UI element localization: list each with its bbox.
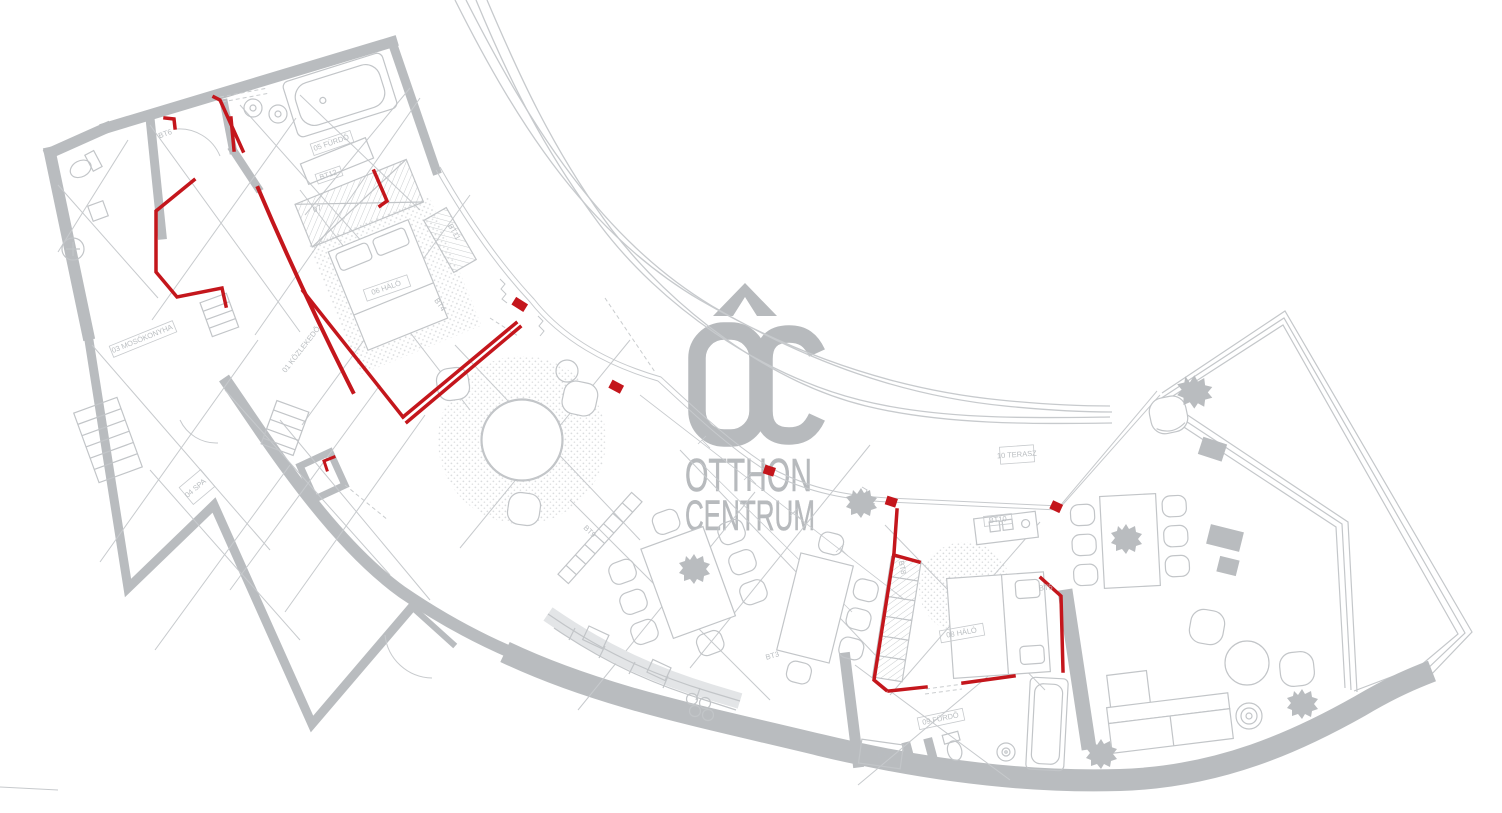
- otthon-centrum-watermark: OTTHON CENTRUM: [685, 283, 817, 540]
- bed-bedroom08: [947, 572, 1051, 679]
- washing-machine: [88, 201, 109, 222]
- room-label: BT5: [1038, 582, 1053, 592]
- toilet-bath09: [942, 731, 965, 762]
- wardrobe-bt8: [872, 557, 921, 682]
- room-label: BT6: [157, 127, 173, 140]
- room-label: 04 SPA: [183, 477, 208, 500]
- pouf: [506, 491, 542, 527]
- room-label: BT10: [988, 514, 1007, 525]
- floor-plan-drawing: OTTHON CENTRUM: [0, 0, 1502, 813]
- floor-plan-page: OTTHON CENTRUM: [0, 0, 1502, 813]
- room-label: 03 MOSÓKONYHA: [110, 322, 174, 355]
- logo-letter-o: [697, 331, 758, 438]
- shower-drain: [997, 743, 1015, 761]
- room-label: BT12: [318, 167, 338, 181]
- terrace-pouf: [1278, 650, 1315, 687]
- terrace-pouf: [1187, 607, 1226, 646]
- terrace-round-table: [1225, 641, 1269, 685]
- bathtub-09: [1026, 677, 1069, 771]
- logo-chevron-icon: [713, 283, 777, 316]
- dining-table-2: [770, 527, 889, 697]
- terrace-ring-table: [1236, 703, 1262, 729]
- logo-letter-c: [764, 334, 817, 436]
- toilet: [66, 151, 102, 181]
- room-label: BT3: [764, 649, 780, 661]
- room-label: 10 TERASZ: [997, 449, 1038, 461]
- room-label: 01 KÖZLEKEDŐ: [280, 324, 322, 374]
- shower-heads: [244, 99, 287, 123]
- site-boundary-arcs: [455, 0, 1112, 423]
- terrace-sofa: [1103, 661, 1234, 753]
- stairs: [200, 293, 239, 336]
